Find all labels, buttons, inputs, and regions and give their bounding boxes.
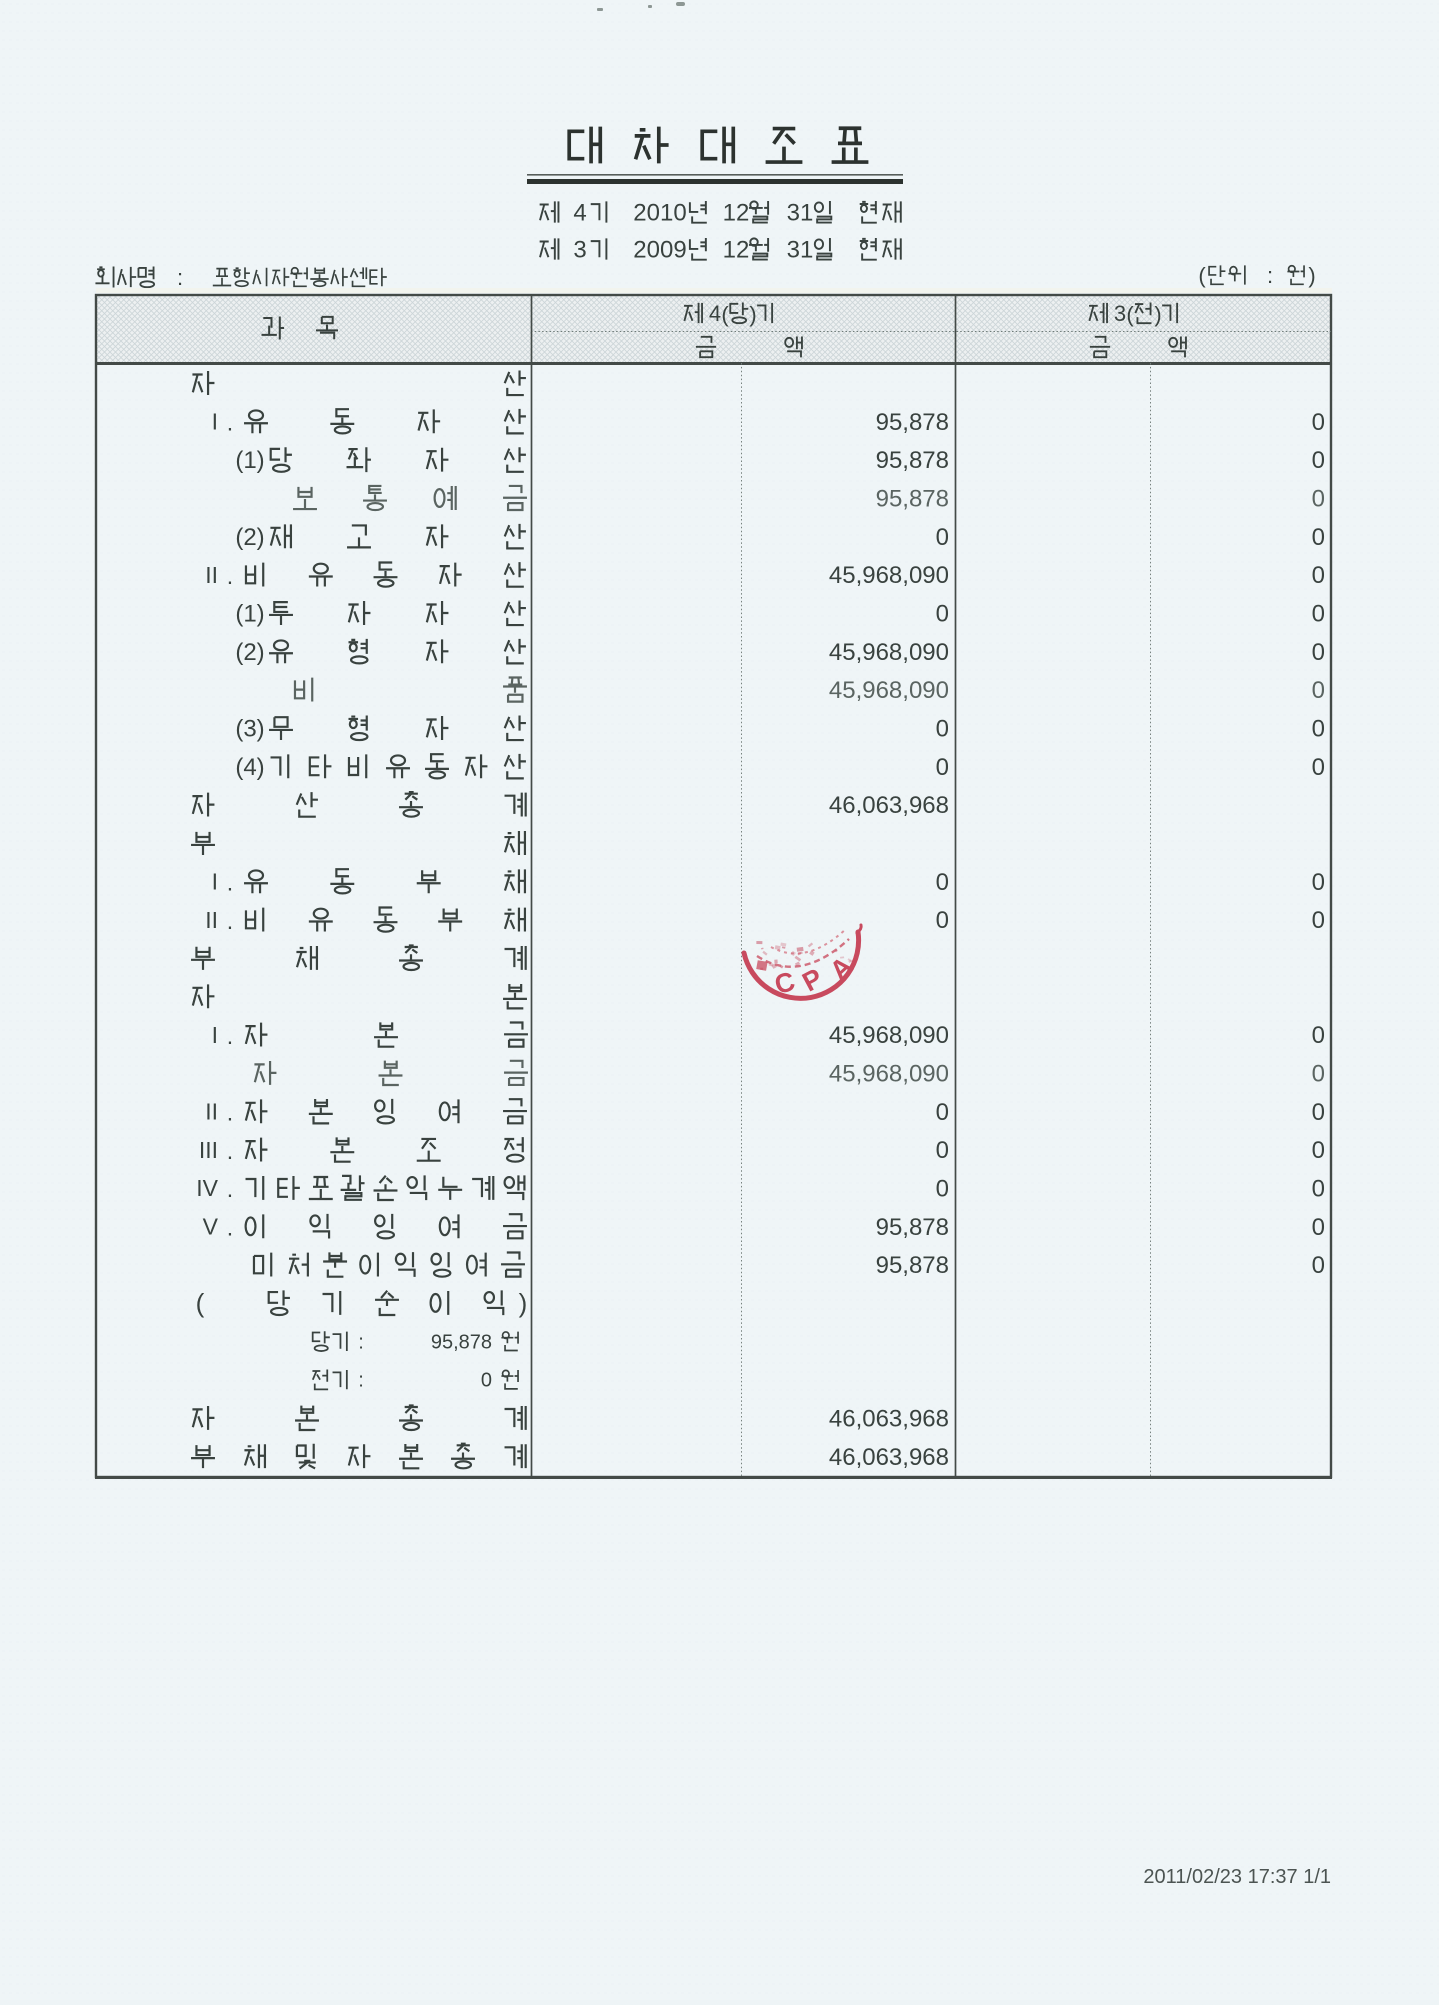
svg-text:0: 0 [936, 1099, 949, 1126]
svg-text:12: 12 [723, 200, 750, 227]
svg-text:V: V [203, 1213, 219, 1239]
svg-text:.: . [227, 1214, 233, 1240]
svg-text:12: 12 [723, 237, 750, 264]
svg-text:(: ( [1126, 302, 1134, 327]
svg-text::: : [1267, 263, 1273, 288]
svg-text:0: 0 [1312, 1252, 1325, 1279]
svg-text:31: 31 [787, 200, 814, 227]
svg-text:0: 0 [936, 524, 949, 551]
svg-text:III: III [199, 1137, 218, 1163]
svg-text:4: 4 [573, 200, 586, 227]
svg-text:45,968,090: 45,968,090 [829, 677, 949, 704]
svg-text:2011/02/23 17:37 1/1: 2011/02/23 17:37 1/1 [1143, 1866, 1331, 1888]
svg-text:(: ( [196, 1288, 205, 1318]
svg-text:95,878: 95,878 [876, 486, 949, 513]
svg-text:46,063,968: 46,063,968 [829, 1444, 949, 1471]
svg-text:95,878: 95,878 [876, 409, 949, 436]
svg-text:I: I [212, 869, 218, 895]
svg-text:0: 0 [1312, 1175, 1325, 1202]
svg-text:0: 0 [936, 869, 949, 896]
svg-text:45,968,090: 45,968,090 [829, 1022, 949, 1049]
svg-text:0: 0 [1312, 716, 1325, 743]
svg-text:0: 0 [1312, 562, 1325, 589]
svg-text:31: 31 [787, 237, 814, 264]
svg-text::: : [177, 265, 183, 290]
svg-text:0: 0 [1312, 1061, 1325, 1088]
svg-text:(2): (2) [235, 639, 264, 666]
svg-text:0: 0 [1312, 409, 1325, 436]
svg-text:(: ( [1198, 263, 1206, 288]
svg-text:I: I [212, 409, 218, 435]
svg-text:3: 3 [573, 237, 586, 264]
svg-text:I: I [212, 1022, 218, 1048]
svg-text:0: 0 [1312, 677, 1325, 704]
svg-text:0: 0 [936, 1137, 949, 1164]
svg-text:(3): (3) [235, 716, 264, 743]
svg-text:0: 0 [481, 1370, 492, 1392]
svg-text:0: 0 [1312, 1022, 1325, 1049]
svg-text:II: II [205, 907, 218, 933]
svg-text:95,878: 95,878 [431, 1331, 492, 1353]
svg-text:IV: IV [196, 1175, 218, 1201]
svg-text:0: 0 [936, 716, 949, 743]
svg-text:0: 0 [1312, 754, 1325, 781]
svg-text:0: 0 [1312, 601, 1325, 628]
svg-text:(1): (1) [235, 601, 264, 628]
svg-text:0: 0 [1312, 639, 1325, 666]
svg-text:45,968,090: 45,968,090 [829, 639, 949, 666]
svg-text:.: . [227, 1099, 233, 1125]
svg-text:(1): (1) [235, 447, 264, 474]
svg-text:46,063,968: 46,063,968 [829, 792, 949, 819]
svg-text:.: . [227, 908, 233, 934]
svg-text:.: . [227, 870, 233, 896]
svg-text:46,063,968: 46,063,968 [829, 1405, 949, 1432]
svg-text:0: 0 [936, 907, 949, 934]
svg-text:2009: 2009 [633, 237, 686, 264]
svg-text:0: 0 [1312, 1099, 1325, 1126]
svg-text:0: 0 [1312, 1214, 1325, 1241]
svg-text:95,878: 95,878 [876, 1252, 949, 1279]
svg-text:0: 0 [1312, 907, 1325, 934]
svg-text:95,878: 95,878 [876, 447, 949, 474]
svg-text:2010: 2010 [633, 200, 686, 227]
svg-text:0: 0 [1312, 486, 1325, 513]
svg-text:0: 0 [936, 601, 949, 628]
svg-text::: : [358, 1331, 364, 1353]
svg-text:0: 0 [936, 1175, 949, 1202]
svg-text:.: . [227, 1023, 233, 1049]
svg-text:0: 0 [1312, 1137, 1325, 1164]
svg-text:3: 3 [1114, 301, 1126, 326]
svg-text:II: II [205, 1098, 218, 1124]
svg-text::: : [358, 1370, 364, 1392]
svg-text:II: II [205, 562, 218, 588]
svg-text:(2): (2) [235, 524, 264, 551]
svg-text:(4): (4) [235, 754, 264, 781]
svg-text:): ) [519, 1288, 528, 1318]
svg-text:.: . [227, 410, 233, 436]
svg-text:(: ( [721, 302, 729, 327]
svg-text:.: . [227, 563, 233, 589]
svg-text:45,968,090: 45,968,090 [829, 1061, 949, 1088]
svg-text:95,878: 95,878 [876, 1214, 949, 1241]
svg-text:0: 0 [936, 754, 949, 781]
svg-text:): ) [1154, 302, 1161, 327]
svg-text:0: 0 [1312, 869, 1325, 896]
svg-text:): ) [749, 302, 756, 327]
svg-text:0: 0 [1312, 524, 1325, 551]
svg-text:4: 4 [709, 301, 721, 326]
svg-text:): ) [1308, 263, 1315, 288]
svg-text:.: . [227, 1176, 233, 1202]
svg-text:0: 0 [1312, 447, 1325, 474]
svg-text:.: . [227, 1138, 233, 1164]
svg-text:45,968,090: 45,968,090 [829, 562, 949, 589]
